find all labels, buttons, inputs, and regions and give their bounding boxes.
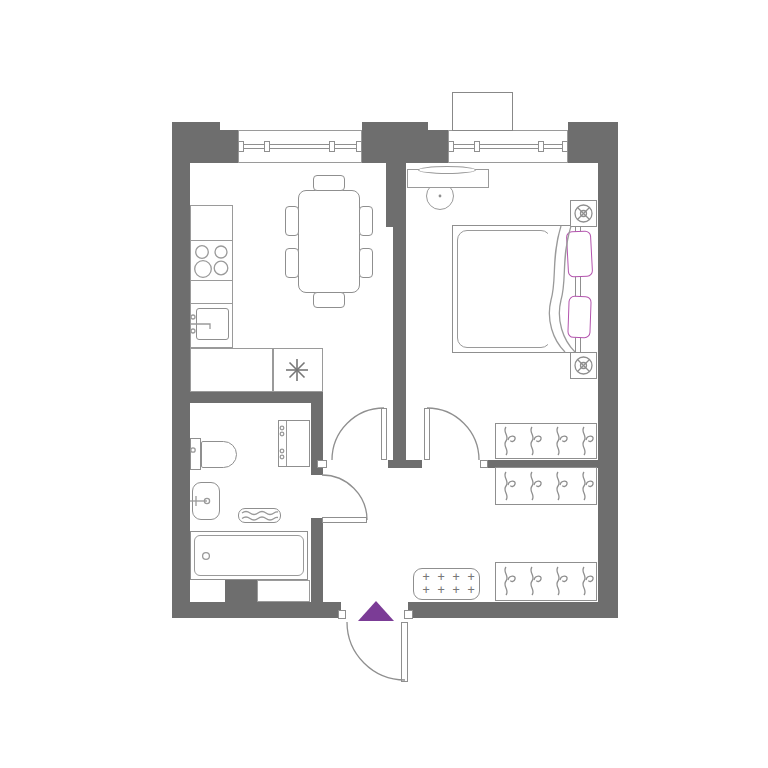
wardrobe-hall-upper bbox=[495, 467, 597, 505]
floor-plan: + + + + + + + + bbox=[0, 0, 768, 768]
bathroom-cabinet bbox=[278, 420, 310, 467]
wall-right bbox=[598, 163, 618, 618]
bathroom-door-leaf bbox=[322, 517, 367, 523]
door-jamb-plate bbox=[317, 460, 327, 468]
towel-radiator bbox=[238, 508, 281, 523]
wall-left bbox=[172, 163, 190, 618]
dining-chair-bottom bbox=[313, 292, 345, 308]
pillow bbox=[566, 230, 593, 277]
wall-duct-block bbox=[225, 580, 257, 602]
nightstand-bottom bbox=[570, 352, 597, 379]
appliance-unit bbox=[273, 348, 323, 392]
console-mirror-oval bbox=[418, 166, 476, 174]
wall-bathroom-top bbox=[172, 392, 323, 403]
bathroom-door-arc bbox=[322, 475, 367, 520]
bedroom-door-arc bbox=[427, 408, 479, 460]
wall-bottom-left bbox=[172, 602, 341, 618]
bed-mattress bbox=[457, 230, 551, 348]
doormat-plus: + bbox=[435, 584, 447, 596]
wall-top-right-block bbox=[568, 122, 618, 163]
dining-chair-left bbox=[285, 206, 299, 236]
bath-end-niche bbox=[257, 580, 310, 602]
living-room-door-leaf bbox=[381, 408, 387, 460]
wall-partition-upper bbox=[386, 163, 406, 227]
wall-top-left-step bbox=[220, 130, 238, 163]
dining-chair-right bbox=[359, 206, 373, 236]
window-living-mullion bbox=[329, 141, 335, 152]
window-bedroom-mullion bbox=[562, 141, 568, 152]
window-living-glazing bbox=[238, 144, 362, 149]
door-jamb-plate bbox=[480, 460, 488, 468]
living-room-door-arc bbox=[332, 408, 384, 460]
wall-hall-stub-base bbox=[388, 460, 422, 468]
counter-divider bbox=[190, 240, 233, 241]
wardrobe-hall-lower bbox=[495, 562, 597, 601]
doormat-plus: + bbox=[420, 571, 432, 583]
door-jamb-plate bbox=[404, 610, 413, 619]
wall-top-center-step bbox=[428, 130, 448, 163]
doormat-plus: + bbox=[465, 584, 477, 596]
dining-chair-left bbox=[285, 248, 299, 278]
door-jamb-plate bbox=[338, 610, 346, 619]
nightstand-top bbox=[570, 200, 597, 227]
pillow bbox=[567, 296, 591, 339]
doormat-plus: + bbox=[465, 571, 477, 583]
window-living-mullion bbox=[356, 141, 362, 152]
window-bedroom-mullion bbox=[538, 141, 544, 152]
wall-top-left-block bbox=[172, 122, 220, 163]
window-bedroom-glazing bbox=[448, 144, 568, 149]
wall-top-center-pier bbox=[362, 122, 428, 163]
entrance-door-leaf bbox=[401, 622, 408, 682]
doormat-plus: + bbox=[420, 584, 432, 596]
dining-table bbox=[298, 190, 360, 293]
dining-chair-top bbox=[313, 175, 345, 191]
entrance-triangle-marker bbox=[358, 601, 394, 621]
wall-bathroom-right-lower bbox=[311, 518, 323, 602]
open-window-sash bbox=[452, 92, 513, 131]
window-bedroom-mullion bbox=[474, 141, 480, 152]
toilet-cistern bbox=[190, 438, 201, 470]
doormat-plus: + bbox=[450, 571, 462, 583]
kitchen-sink bbox=[196, 308, 229, 340]
window-living-mullion bbox=[238, 141, 244, 152]
plan-overlay bbox=[0, 0, 768, 768]
dining-chair-right bbox=[359, 248, 373, 278]
window-living-mullion bbox=[264, 141, 270, 152]
cabinet-divider bbox=[286, 421, 287, 466]
counter-divider bbox=[190, 280, 233, 281]
bedroom-door-leaf bbox=[424, 408, 430, 460]
counter-divider bbox=[190, 303, 233, 304]
wardrobe-bedroom bbox=[495, 423, 597, 459]
toilet-bowl bbox=[201, 441, 237, 468]
entrance-door-arc bbox=[347, 622, 405, 680]
wall-bottom-right bbox=[408, 602, 618, 618]
doormat-plus: + bbox=[435, 571, 447, 583]
washbasin bbox=[192, 482, 220, 520]
bathtub-inner bbox=[194, 535, 304, 576]
doormat-plus: + bbox=[450, 584, 462, 596]
wall-partition-lower bbox=[393, 227, 406, 460]
kitchen-worktop-bottom bbox=[190, 348, 273, 392]
window-bedroom-mullion bbox=[448, 141, 454, 152]
